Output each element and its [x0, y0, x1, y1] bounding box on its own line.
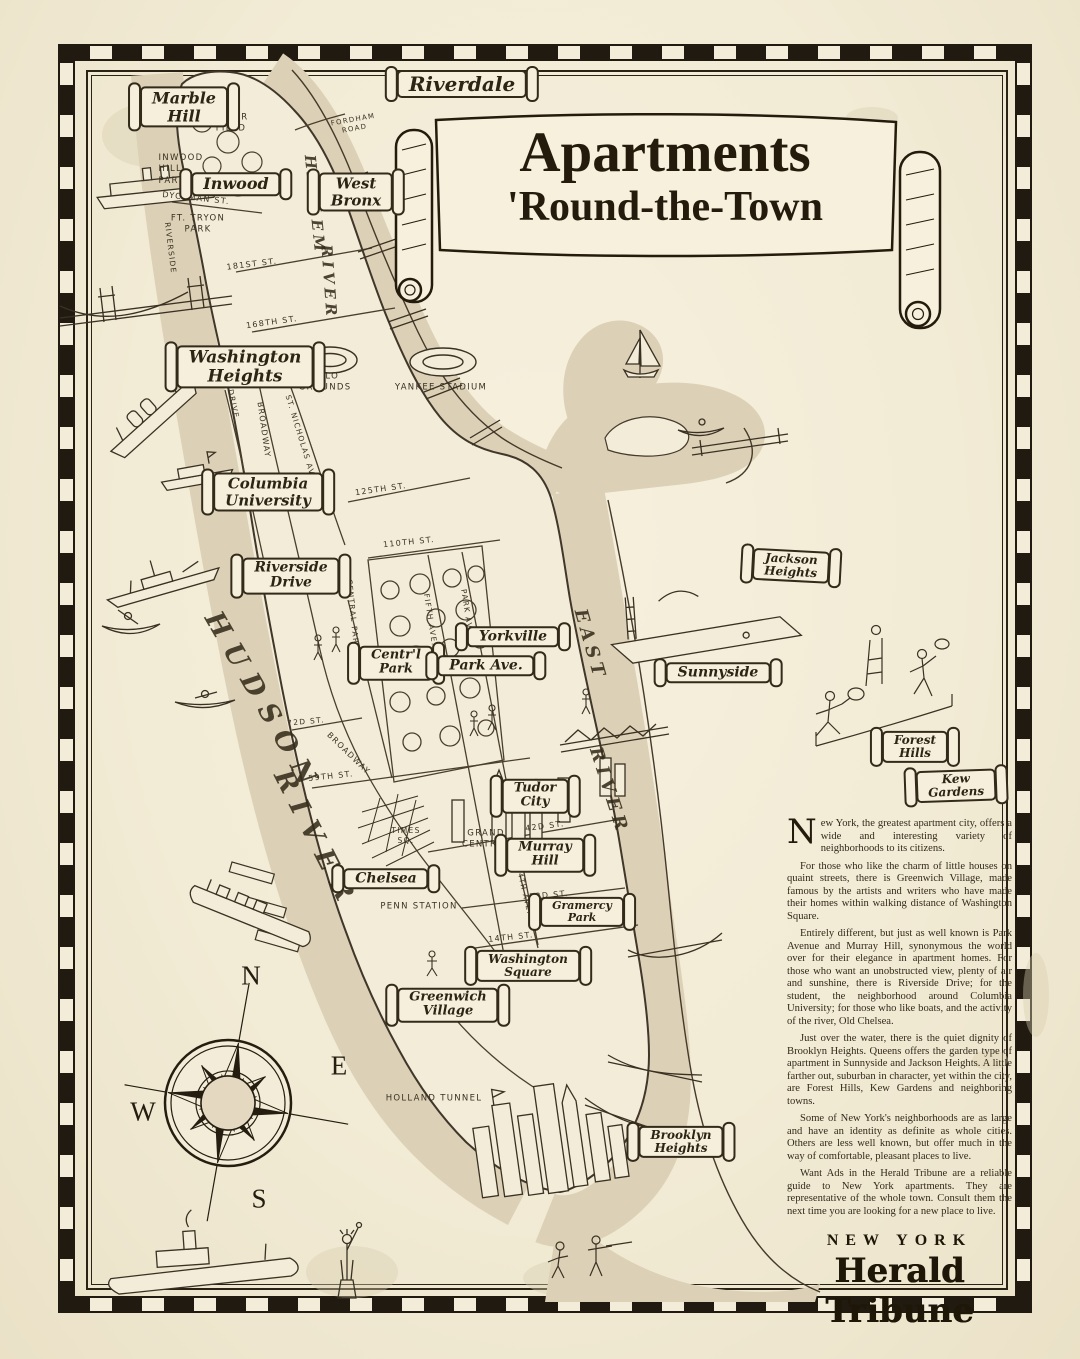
banner-inwood: Inwood — [191, 172, 280, 196]
article-paragraph-3: Entirely different, but just as well kno… — [787, 928, 1012, 1028]
banner-greenwich-village: Greenwich Village — [397, 988, 498, 1023]
compass-west-label: W — [130, 1097, 155, 1128]
compass-south-label: S — [251, 1184, 266, 1215]
checkered-border-left — [58, 44, 75, 1313]
banner-brooklyn-heights: Brooklyn Heights — [638, 1126, 723, 1158]
article-paragraph-1: New York, the greatest apartment city, o… — [787, 818, 1012, 856]
article-paragraph-5: Some of New York's neighborhoods are as … — [787, 1113, 1012, 1163]
map-subtitle: 'Round-the-Town — [434, 184, 896, 230]
banner-kew-gardens: Kew Gardens — [916, 768, 997, 803]
banner-riverdale: Riverdale — [397, 70, 527, 98]
label-holland-tunnel: HOLLAND TUNNEL — [386, 1093, 483, 1104]
banner-yorkville: Yorkville — [467, 626, 559, 647]
compass-north-label: N — [241, 961, 261, 992]
banner-forest-hills: Forest Hills — [882, 731, 948, 763]
title-banner: Apartments 'Round-the-Town — [434, 118, 896, 254]
banner-gramercy-park: Gramercy Park — [540, 897, 624, 927]
banner-washington-square: Washington Square — [476, 950, 580, 982]
banner-marble-hill: Marble Hill — [140, 86, 228, 127]
banner-washington-heights: Washington Heights — [177, 345, 314, 388]
publisher-block: NEW YORK Herald Tribune — [787, 1232, 1012, 1331]
label-ft-tryon-park: FT. TRYON PARK — [171, 214, 225, 237]
banner-jackson-heights: Jackson Heights — [752, 548, 831, 584]
checkered-border-top — [58, 44, 1032, 61]
banner-central-park: Centr'l Park — [359, 646, 433, 681]
article-paragraph-1-text: ew York, the greatest apartment city, of… — [821, 818, 1012, 854]
article-text: New York, the greatest apartment city, o… — [787, 818, 1012, 1223]
compass-east-label: E — [331, 1051, 348, 1082]
article-drop-cap: N — [787, 818, 821, 844]
banner-riverside-drive: Riverside Drive — [242, 558, 339, 595]
checkered-border-right — [1015, 44, 1032, 1313]
label-yankee-stadium: YANKEE STADIUM — [395, 382, 487, 393]
banner-park-avenue: Park Ave. — [437, 655, 534, 676]
article-paragraph-6: Want Ads in the Herald Tribune are a rel… — [787, 1168, 1012, 1218]
banner-tudor-city: Tudor City — [502, 779, 569, 814]
publisher-city: NEW YORK — [787, 1232, 1012, 1250]
publisher-name: Herald Tribune — [787, 1251, 1012, 1331]
banner-murray-hill: Murray Hill — [506, 838, 584, 873]
banner-sunnyside: Sunnyside — [666, 662, 771, 683]
map-title: Apartments — [434, 124, 896, 181]
banner-columbia-university: Columbia University — [213, 473, 323, 512]
banner-chelsea: Chelsea — [343, 868, 428, 889]
article-paragraph-4: Just over the water, there is the quiet … — [787, 1033, 1012, 1108]
banner-west-bronx: West Bronx — [319, 173, 393, 212]
label-penn-station: PENN STATION — [380, 901, 457, 912]
map-page: Apartments 'Round-the-Town Riverdale Mar… — [0, 0, 1080, 1359]
label-times-sq: TIMES SQ. — [391, 826, 420, 846]
article-paragraph-2: For those who like the charm of little h… — [787, 861, 1012, 924]
